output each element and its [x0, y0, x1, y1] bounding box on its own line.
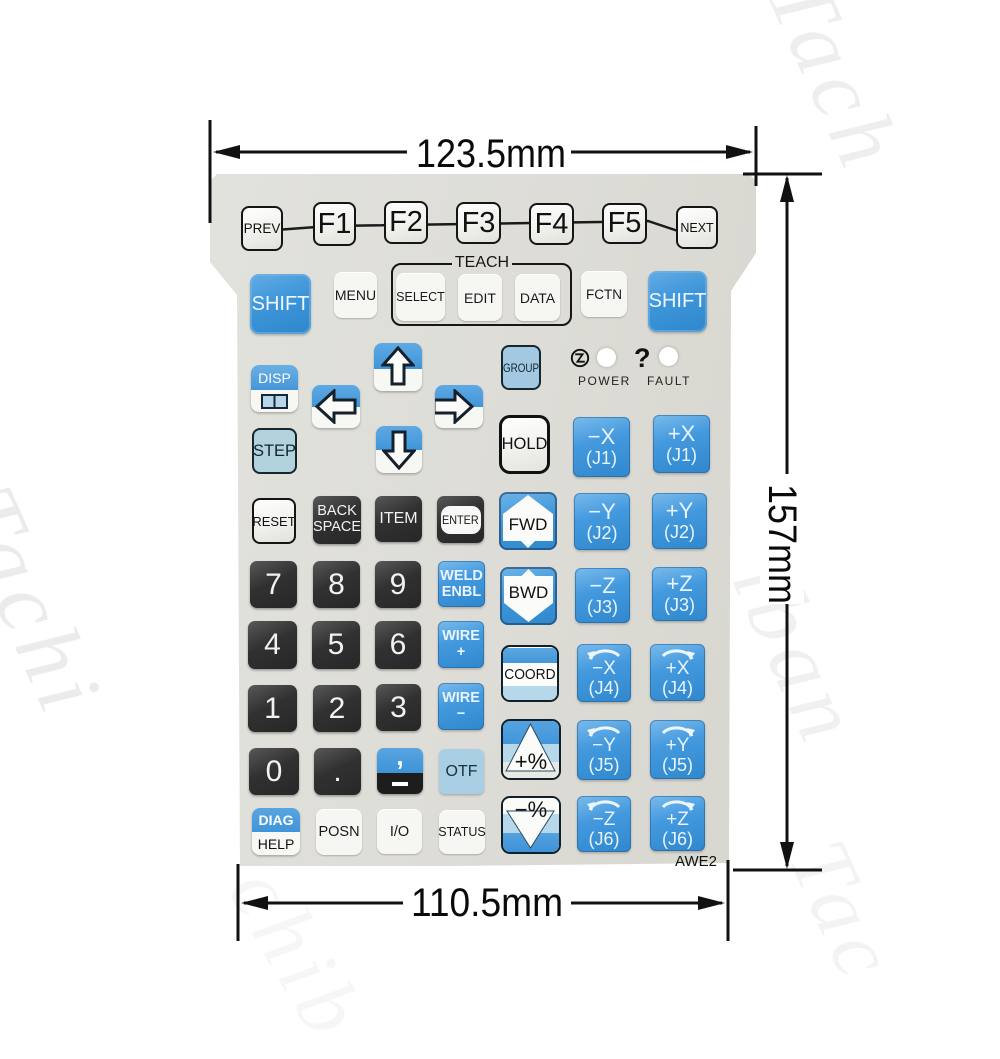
svg-text:110.5mm: 110.5mm [411, 881, 563, 925]
svg-text:157mm: 157mm [760, 484, 804, 604]
svg-text:123.5mm: 123.5mm [416, 132, 566, 176]
